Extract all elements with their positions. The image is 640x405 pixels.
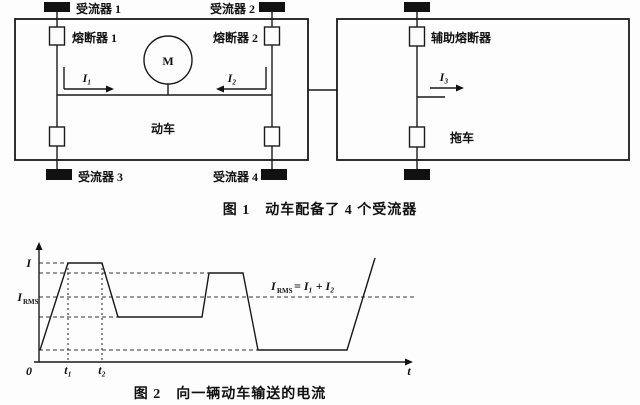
fuse-2-label: 熔断器 2 [213,30,258,45]
aux-pantograph-top-icon [404,2,430,12]
current-1-label: I₁ [82,71,92,85]
fuse-2-icon [265,27,280,45]
trailer-label: 拖车 [450,130,474,145]
x-axis-label: t [407,364,411,378]
train-circuit-diagram: M I₁ I₂ I₃ 受流器 1 受流器 2 熔断器 1 熔断器 2 动车 受流… [0,0,640,196]
t2-tick-label: t₂ [98,363,106,377]
current-curve [40,258,375,350]
motor-label: M [162,54,173,68]
rms-current-label-sub: RMS [23,298,39,306]
pantograph-1-icon [44,2,70,12]
pantograph-4-label: 受流器 4 [213,169,258,184]
current-3-arrowhead-icon [456,85,464,92]
current-chart: I I RMS 0 t₁ t₂ t I RMS = I₁ + I₂ [0,240,640,381]
t1-tick-label: t₁ [64,363,72,377]
aux-fuse-label: 辅助熔断器 [431,30,492,45]
pantograph-2-icon [259,2,285,12]
figure-1-caption: 图 1 动车配备了 4 个受流器 [0,199,640,219]
figure-2-caption: 图 2 向一辆动车输送的电流 [0,383,460,403]
fuse-3-icon [50,127,65,146]
fuse-1-label: 熔断器 1 [72,30,117,45]
origin-label: 0 [26,364,32,378]
pantograph-2-label: 受流器 2 [210,1,255,16]
fuse-1-icon [50,27,65,45]
current-1-arrowhead-icon [106,86,114,93]
peak-current-label: I [25,256,32,270]
trailer-fuse-icon [410,127,425,147]
pantograph-1-label: 受流器 1 [76,1,121,16]
current-2-label: I₂ [227,71,237,85]
pantograph-3-label: 受流器 3 [78,169,123,184]
rms-annotation-rest: = I₁ + I₂ [294,279,334,293]
y-axis-arrowhead-icon [36,242,43,250]
aux-fuse-icon [410,27,425,46]
current-2-arrowhead-icon [216,86,224,93]
time-marks [68,263,102,362]
fuse-4-icon [265,127,280,146]
current-3-label: I₃ [439,70,449,84]
pantograph-4-icon [261,169,287,180]
rms-annotation-sub: RMS [277,287,293,295]
motor-car-label: 动车 [151,121,175,136]
aux-pantograph-bottom-icon [404,169,430,180]
pantograph-3-icon [46,169,72,180]
rms-annotation-base: I [270,279,277,293]
